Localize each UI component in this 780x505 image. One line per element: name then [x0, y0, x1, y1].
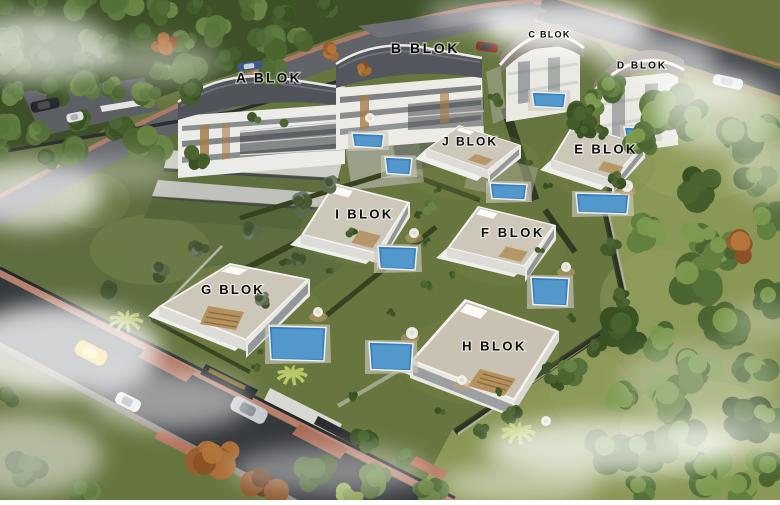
svg-text:F BLOK: F BLOK — [481, 225, 545, 240]
svg-text:A BLOK: A BLOK — [236, 70, 302, 85]
svg-text:G BLOK: G BLOK — [201, 282, 265, 297]
svg-text:B BLOK: B BLOK — [391, 40, 460, 56]
svg-text:E BLOK: E BLOK — [574, 142, 638, 157]
svg-text:H BLOK: H BLOK — [462, 339, 527, 354]
svg-text:D BLOK: D BLOK — [617, 61, 667, 72]
svg-text:I BLOK: I BLOK — [335, 207, 393, 222]
svg-text:J BLOK: J BLOK — [442, 135, 498, 149]
svg-text:C BLOK: C BLOK — [528, 30, 570, 40]
